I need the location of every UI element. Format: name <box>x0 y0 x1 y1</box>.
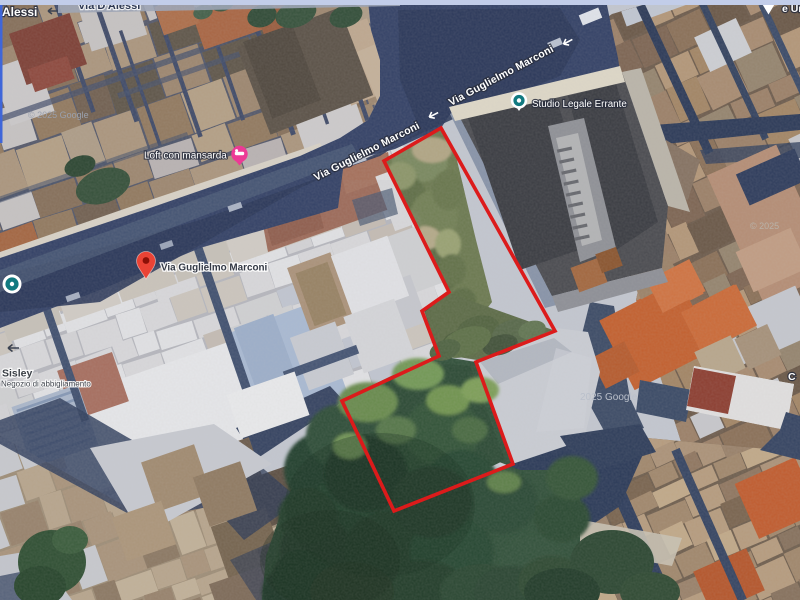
svg-text:© 2025: © 2025 <box>750 221 779 231</box>
svg-text:Sisley: Sisley <box>2 368 33 380</box>
svg-text:Alessi: Alessi <box>2 5 37 19</box>
svg-text:2025 Google: 2025 Google <box>580 392 638 403</box>
svg-text:Loft con mansarda: Loft con mansarda <box>144 151 227 162</box>
svg-text:Negozio di abbigliamento: Negozio di abbigliamento <box>1 380 91 389</box>
svg-text:Studio Legale Errante: Studio Legale Errante <box>532 99 627 110</box>
svg-text:Via Guglielmo Marconi: Via Guglielmo Marconi <box>161 263 268 274</box>
svg-text:C: C <box>788 371 796 383</box>
svg-text:© 2025 Google: © 2025 Google <box>28 110 89 120</box>
